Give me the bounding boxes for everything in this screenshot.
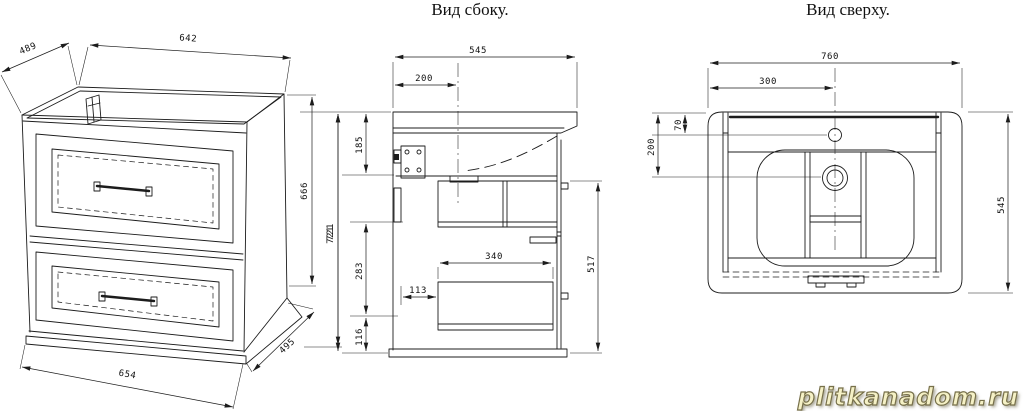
upper-drawer-handle [94, 182, 152, 196]
top-view-drawing: 760 300 70 200 545 [647, 52, 1013, 293]
basin-outline [757, 150, 914, 266]
top-view-dimensions: 760 300 70 200 545 [647, 52, 1013, 293]
dim-front-side-height: 666 [300, 182, 310, 200]
lower-drawer-handle [99, 292, 157, 306]
plinth-profile [389, 349, 567, 357]
drawer-rail [530, 237, 556, 243]
dim-front-bottom-depth: 495 [278, 337, 298, 356]
technical-drawing-page: Вид сбоку. Вид сверху. [0, 0, 1023, 411]
dim-top-faucet-x: 300 [759, 77, 777, 87]
dim-top-faucet-y: 70 [674, 119, 684, 131]
dim-side-basin-center: 200 [415, 74, 433, 84]
dim-side-overall-height: 721 [326, 226, 336, 244]
watermark: plitkanadom.ru [798, 383, 1019, 411]
upper-drawer-box [438, 181, 557, 227]
front-view-drawing: 489 642 666 721 654 495 [1, 33, 342, 409]
top-view-title: Вид сверху. [806, 0, 890, 19]
upper-knob-profile [561, 183, 568, 189]
dim-side-drawer-inset: 113 [409, 286, 427, 296]
dim-front-top-width: 642 [179, 33, 197, 44]
dim-side-counter-to-bracket: 185 [355, 136, 365, 154]
dim-top-overall-width: 760 [821, 52, 839, 62]
dim-front-top-depth: 489 [18, 41, 38, 57]
upper-drawer-front [36, 134, 233, 243]
countertop-profile [393, 112, 577, 133]
basin-curve-hidden [463, 136, 557, 171]
lower-drawer-front [36, 252, 233, 341]
dim-side-drawer-depth: 340 [485, 252, 503, 262]
dim-side-overall-depth: 545 [469, 46, 487, 56]
dim-side-front-height: 517 [587, 255, 597, 273]
drawing-canvas: Вид сбоку. Вид сверху. [0, 0, 1023, 411]
side-view-drawing: 545 200 185 283 116 721 113 340 517 [326, 46, 602, 357]
dim-side-bottom-section: 116 [355, 328, 365, 346]
lower-drawer-box [438, 282, 553, 330]
wall-bracket [394, 146, 425, 178]
crossbar [810, 216, 861, 222]
dim-top-overall-depth: 545 [997, 196, 1007, 214]
side-notch [394, 188, 401, 222]
dim-side-mid-section: 283 [355, 262, 365, 280]
side-view-title: Вид сбоку. [431, 0, 508, 19]
top-view-handle [808, 276, 864, 287]
dim-top-drain-y: 200 [647, 138, 657, 156]
dim-front-bottom-width: 654 [118, 369, 137, 382]
lower-knob-profile [561, 293, 568, 299]
